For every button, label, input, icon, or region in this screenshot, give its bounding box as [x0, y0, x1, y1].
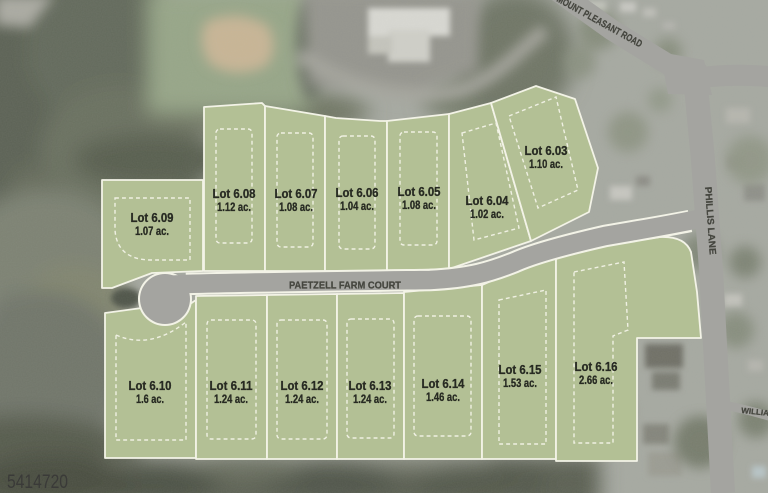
svg-text:1.24 ac.: 1.24 ac.	[353, 394, 387, 406]
svg-text:2.66 ac.: 2.66 ac.	[579, 375, 613, 387]
svg-text:Lot 6.11: Lot 6.11	[210, 378, 253, 393]
svg-text:1.08 ac.: 1.08 ac.	[279, 202, 313, 214]
svg-text:1.12 ac.: 1.12 ac.	[217, 202, 251, 214]
svg-text:Lot 6.03: Lot 6.03	[525, 143, 568, 158]
svg-text:Lot 6.16: Lot 6.16	[575, 359, 618, 374]
svg-text:Lot 6.08: Lot 6.08	[213, 186, 256, 201]
svg-text:1.24 ac.: 1.24 ac.	[214, 394, 248, 406]
svg-text:Lot 6.09: Lot 6.09	[131, 210, 174, 225]
svg-text:PAETZELL FARM COURT: PAETZELL FARM COURT	[289, 280, 402, 292]
svg-text:1.10 ac.: 1.10 ac.	[529, 159, 563, 171]
svg-text:Lot 6.07: Lot 6.07	[275, 186, 318, 201]
svg-text:Lot 6.05: Lot 6.05	[398, 184, 441, 199]
svg-text:Lot 6.13: Lot 6.13	[349, 378, 392, 393]
svg-text:Lot 6.12: Lot 6.12	[281, 378, 324, 393]
svg-text:1.02 ac.: 1.02 ac.	[470, 209, 504, 221]
svg-text:1.53 ac.: 1.53 ac.	[503, 378, 537, 390]
svg-text:Lot 6.10: Lot 6.10	[129, 378, 172, 393]
svg-text:1.04 ac.: 1.04 ac.	[340, 201, 374, 213]
svg-text:1.46 ac.: 1.46 ac.	[426, 392, 460, 404]
svg-text:1.6 ac.: 1.6 ac.	[136, 394, 164, 406]
svg-text:Lot 6.15: Lot 6.15	[499, 362, 542, 377]
svg-text:Lot 6.06: Lot 6.06	[336, 185, 379, 200]
svg-text:1.24 ac.: 1.24 ac.	[285, 394, 319, 406]
svg-text:1.08 ac.: 1.08 ac.	[402, 200, 436, 212]
svg-text:5414720: 5414720	[7, 472, 68, 493]
svg-text:Lot 6.04: Lot 6.04	[466, 193, 510, 208]
svg-text:Lot 6.14: Lot 6.14	[422, 376, 466, 391]
svg-text:1.07 ac.: 1.07 ac.	[135, 226, 169, 238]
